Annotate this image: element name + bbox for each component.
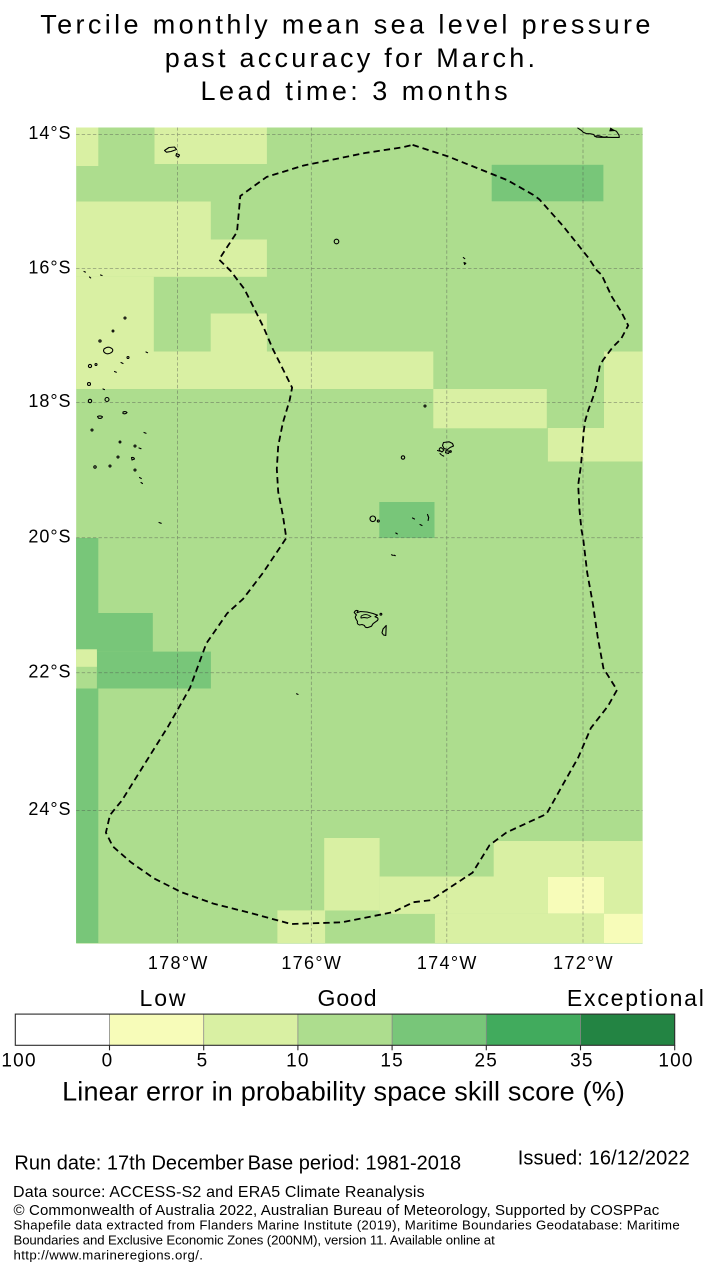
svg-text:10: 10 — [286, 1051, 310, 1072]
svg-text:15: 15 — [380, 1051, 404, 1072]
svg-text:Lead time: 3 months: Lead time: 3 months — [201, 76, 512, 106]
svg-text:Low: Low — [140, 985, 188, 1011]
svg-text:35: 35 — [570, 1051, 594, 1072]
svg-text:http://www.marineregions.org/.: http://www.marineregions.org/. — [14, 1248, 204, 1263]
svg-text:14°S: 14°S — [28, 123, 71, 143]
svg-text:past accuracy for March.: past accuracy for March. — [165, 43, 539, 73]
svg-text:18°S: 18°S — [28, 391, 71, 411]
svg-text:176°W: 176°W — [281, 953, 342, 973]
svg-text:Good: Good — [318, 985, 378, 1011]
svg-text:Issued: 16/12/2022: Issued: 16/12/2022 — [518, 1148, 690, 1170]
svg-text:25: 25 — [475, 1051, 499, 1072]
svg-text:Base period: 1981-2018: Base period: 1981-2018 — [248, 1152, 462, 1174]
svg-text:Boundaries and Exclusive Econo: Boundaries and Exclusive Economic Zones … — [14, 1233, 496, 1248]
svg-text:-100: -100 — [0, 1051, 37, 1072]
svg-text:Run date: 17th December: Run date: 17th December — [14, 1152, 244, 1174]
svg-text:Tercile monthly mean sea level: Tercile monthly mean sea level pressure — [40, 9, 654, 39]
svg-text:178°W: 178°W — [148, 953, 209, 973]
svg-text:22°S: 22°S — [28, 662, 71, 682]
svg-text:Exceptional: Exceptional — [567, 985, 705, 1011]
svg-text:Shapefile data extracted from: Shapefile data extracted from Flanders M… — [14, 1218, 681, 1233]
svg-text:20°S: 20°S — [28, 527, 71, 547]
svg-text:5: 5 — [197, 1051, 209, 1072]
svg-text:172°W: 172°W — [553, 953, 614, 973]
svg-text:Data source: ACCESS-S2 and ERA: Data source: ACCESS-S2 and ERA5 Climate … — [13, 1184, 425, 1201]
svg-text:100: 100 — [658, 1051, 693, 1072]
svg-text:Linear error in probability sp: Linear error in probability space skill … — [62, 1076, 625, 1106]
svg-text:0: 0 — [102, 1051, 114, 1072]
svg-text:16°S: 16°S — [28, 257, 71, 277]
svg-text:174°W: 174°W — [417, 953, 478, 973]
svg-text:24°S: 24°S — [28, 799, 71, 819]
svg-text:© Commonwealth of Australia 20: © Commonwealth of Australia 2022, Austra… — [14, 1202, 660, 1219]
